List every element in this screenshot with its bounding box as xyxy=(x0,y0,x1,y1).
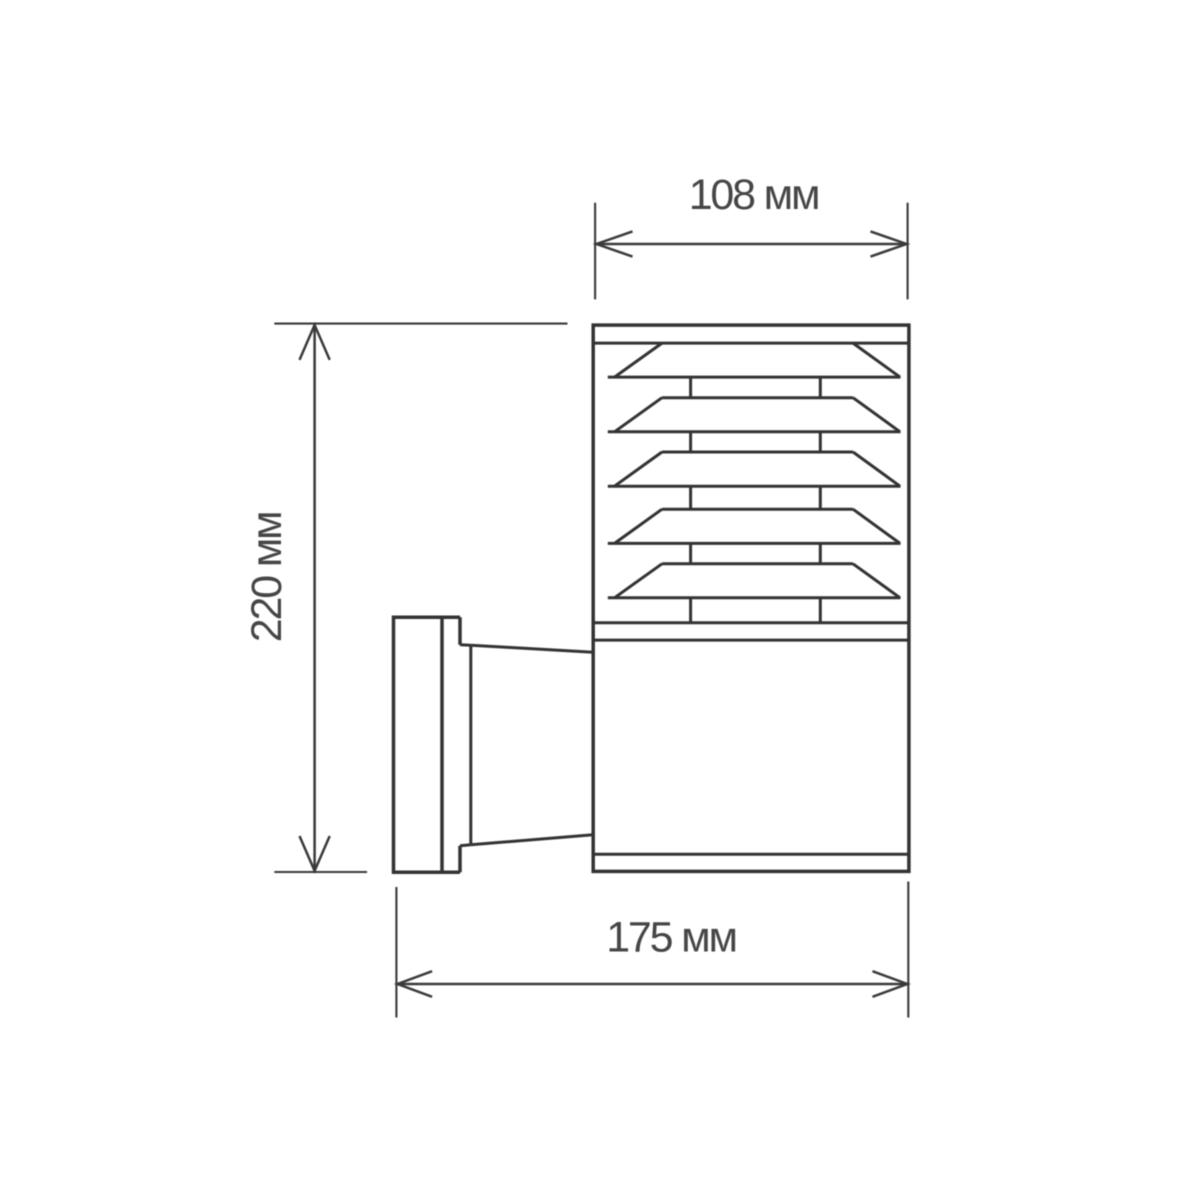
svg-text:220 мм: 220 мм xyxy=(243,513,291,643)
svg-text:175 мм: 175 мм xyxy=(606,914,736,962)
svg-text:108 мм: 108 мм xyxy=(689,171,819,219)
